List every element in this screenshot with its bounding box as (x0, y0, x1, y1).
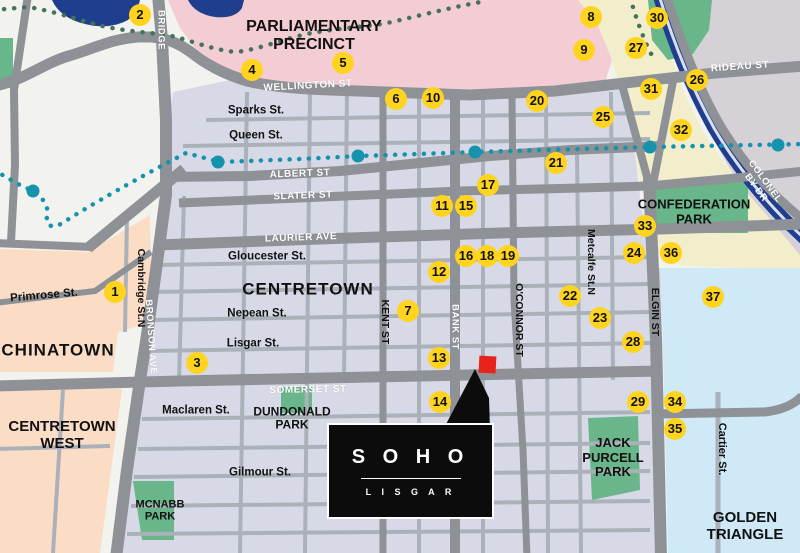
map-marker-29[interactable]: 29 (627, 391, 649, 413)
map-marker-37[interactable]: 37 (702, 286, 724, 308)
map-marker-22[interactable]: 22 (559, 285, 581, 307)
map-marker-27[interactable]: 27 (625, 37, 647, 59)
map-marker-10[interactable]: 10 (422, 87, 444, 109)
map-marker-12[interactable]: 12 (428, 261, 450, 283)
map-marker-23[interactable]: 23 (589, 307, 611, 329)
map-marker-32[interactable]: 32 (670, 119, 692, 141)
map-marker-24[interactable]: 24 (623, 242, 645, 264)
map-marker-2[interactable]: 2 (129, 4, 151, 26)
map-marker-14[interactable]: 14 (429, 391, 451, 413)
map-marker-11[interactable]: 11 (431, 195, 453, 217)
northwest-road-2 (0, 243, 92, 247)
map-marker-7[interactable]: 7 (397, 300, 419, 322)
map-marker-35[interactable]: 35 (664, 418, 686, 440)
map-marker-18[interactable]: 18 (476, 245, 498, 267)
map-marker-20[interactable]: 20 (526, 90, 548, 112)
map-marker-5[interactable]: 5 (332, 52, 354, 74)
ottawa-centretown-map: S O H O L I S G A R PARLIAMENTARY PRECIN… (0, 0, 800, 553)
jack-purcell-park-area (588, 416, 640, 500)
map-marker-36[interactable]: 36 (660, 242, 682, 264)
map-marker-28[interactable]: 28 (622, 331, 644, 353)
map-marker-13[interactable]: 13 (428, 347, 450, 369)
map-marker-6[interactable]: 6 (385, 88, 407, 110)
map-marker-15[interactable]: 15 (455, 195, 477, 217)
map-marker-25[interactable]: 25 (592, 106, 614, 128)
map-marker-31[interactable]: 31 (640, 78, 662, 100)
map-marker-16[interactable]: 16 (455, 245, 477, 267)
map-marker-33[interactable]: 33 (634, 215, 656, 237)
soho-location-pin[interactable] (479, 356, 497, 374)
soho-subtitle: L I S G A R (366, 487, 456, 497)
map-marker-19[interactable]: 19 (497, 245, 519, 267)
map-marker-1[interactable]: 1 (104, 281, 126, 303)
map-marker-3[interactable]: 3 (186, 352, 208, 374)
map-marker-21[interactable]: 21 (545, 152, 567, 174)
map-marker-26[interactable]: 26 (686, 69, 708, 91)
map-marker-30[interactable]: 30 (646, 7, 668, 29)
soho-title: S O H O (352, 446, 470, 469)
map-marker-4[interactable]: 4 (241, 59, 263, 81)
map-marker-17[interactable]: 17 (477, 174, 499, 196)
map-marker-9[interactable]: 9 (573, 39, 595, 61)
soho-divider (361, 478, 461, 479)
soho-callout-box: S O H O L I S G A R (327, 423, 494, 519)
map-marker-34[interactable]: 34 (664, 391, 686, 413)
map-marker-8[interactable]: 8 (580, 6, 602, 28)
